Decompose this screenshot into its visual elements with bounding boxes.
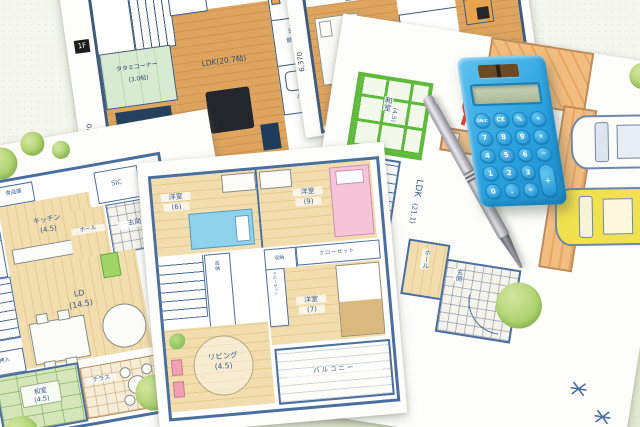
desk — [221, 172, 256, 193]
bed-blue — [188, 208, 255, 249]
bedroom6-size-label: (6) — [163, 202, 190, 213]
key-6[interactable]: 6 — [516, 147, 534, 162]
key-0[interactable]: 0 — [484, 184, 502, 199]
key-2[interactable]: 2 — [500, 165, 518, 180]
pillow — [335, 169, 364, 185]
round-rug — [99, 300, 150, 351]
car-drawing-yellow — [554, 187, 640, 247]
garden-chair — [124, 394, 137, 407]
plant-green — [169, 333, 186, 350]
pantry-label: 食品庫 — [0, 187, 29, 199]
ldk-label: LDK — [411, 178, 424, 197]
closet-label: クローゼット — [299, 246, 375, 259]
genkan-label: 玄関 — [453, 268, 463, 282]
washitsu-label-box: 和室 (4.5) — [19, 380, 62, 409]
key-equals[interactable]: = — [522, 182, 540, 197]
stairs — [158, 255, 208, 321]
car-roof-window — [616, 124, 640, 158]
pink-cushion — [173, 381, 185, 398]
blanket — [339, 299, 384, 337]
tree-drawing — [19, 130, 47, 158]
closet-vertical: クローゼット — [265, 268, 289, 327]
toilet-label: トイレ — [172, 0, 201, 2]
photo-scene: 8.645 1F 6,370 6,370 トイレ タタミコーナー (3.0帖) … — [0, 0, 640, 427]
tree-drawing — [627, 61, 640, 91]
chair — [35, 313, 49, 325]
hall-floor: ホール — [66, 205, 112, 259]
floorplan-paper-hand-center: 洋室 (6) 洋室 (9) 収納 クローゼット — [137, 142, 408, 427]
bed-tan — [335, 262, 385, 338]
survey-mark-drawing — [568, 380, 588, 399]
sic-label: SIC — [98, 177, 135, 191]
pink-cushion — [171, 359, 183, 376]
key-multiply[interactable]: × — [532, 129, 550, 144]
shoe-cabinet — [269, 0, 281, 5]
bedroom9-floor: 洋室 (9) — [257, 160, 377, 248]
calculator-keypad: ON/C CE % ÷ 7 8 9 × 4 5 6 − 1 2 3 + 0 . … — [473, 111, 559, 199]
hall-label: ホール — [71, 223, 106, 235]
bedroom7-size-label: (7) — [299, 304, 326, 315]
closet-label-vertical: クローゼット — [272, 272, 279, 296]
chair — [57, 309, 71, 321]
pillow — [235, 215, 251, 242]
storage-label: 収納 — [267, 254, 291, 262]
living-label-circle: リビング (4.5) — [191, 333, 256, 398]
plan-outline-2f: 洋室 (6) 洋室 (9) 収納 クローゼット — [148, 156, 401, 421]
oshiire-label: 押入 — [0, 355, 20, 367]
tatami-corner-room: タタミコーナー (3.0帖) — [99, 45, 178, 110]
hall-label: ホール — [420, 249, 431, 269]
key-minus[interactable]: − — [535, 146, 553, 161]
key-9[interactable]: 9 — [513, 129, 531, 144]
dimension-height-label: 6,370 — [296, 51, 307, 72]
floor-tag-1f: 1F — [74, 39, 91, 54]
tree-drawing — [51, 139, 72, 160]
key-on-clear[interactable]: ON/C — [473, 113, 491, 128]
key-percent[interactable]: % — [511, 111, 529, 126]
ld-floor: LD (14.5) — [9, 249, 152, 370]
storage-tall: 収納 — [204, 253, 236, 329]
key-clear-entry[interactable]: CE — [492, 112, 510, 127]
key-5[interactable]: 5 — [497, 148, 515, 163]
garden-chair — [140, 362, 153, 375]
key-3[interactable]: 3 — [519, 165, 537, 180]
desk — [259, 169, 292, 190]
up-label: UP — [0, 302, 11, 313]
bedroom7-floor: 洋室 (7) クローゼット — [265, 260, 385, 346]
key-divide[interactable]: ÷ — [529, 111, 547, 126]
ldk-size-label: (21.1) — [407, 202, 419, 224]
plant-green — [100, 252, 122, 279]
bedroom9-size-label: (9) — [295, 196, 322, 207]
car-roof-window — [603, 198, 634, 235]
balcony-label: バルコニー — [286, 362, 382, 378]
cabinet-dark — [476, 6, 490, 20]
key-8[interactable]: 8 — [495, 130, 513, 145]
key-7[interactable]: 7 — [476, 131, 494, 146]
dining-set — [205, 86, 254, 134]
tv-board — [260, 122, 281, 150]
key-plus[interactable]: + — [538, 164, 559, 197]
terrace-label: テラス — [86, 373, 117, 385]
sic-room: SIC — [93, 165, 142, 204]
bedroom6-floor: 洋室 (6) — [151, 170, 263, 257]
storage-label-vertical: 収納 — [213, 260, 220, 270]
car-drawing-white — [570, 114, 640, 170]
key-1[interactable]: 1 — [481, 166, 499, 181]
washitsu-size-label: (4.5) — [389, 107, 398, 122]
pillow — [319, 20, 333, 38]
living-floor: リビング (4.5) — [164, 321, 275, 412]
solar-panel — [477, 64, 519, 78]
survey-mark-drawing — [592, 408, 612, 427]
car-windshield — [579, 196, 594, 238]
car-windshield — [594, 122, 609, 162]
calculator-display — [469, 82, 542, 106]
balcony: バルコニー — [274, 339, 394, 405]
key-4[interactable]: 4 — [479, 148, 497, 163]
bed-pink — [329, 164, 375, 237]
key-decimal[interactable]: . — [503, 183, 521, 198]
